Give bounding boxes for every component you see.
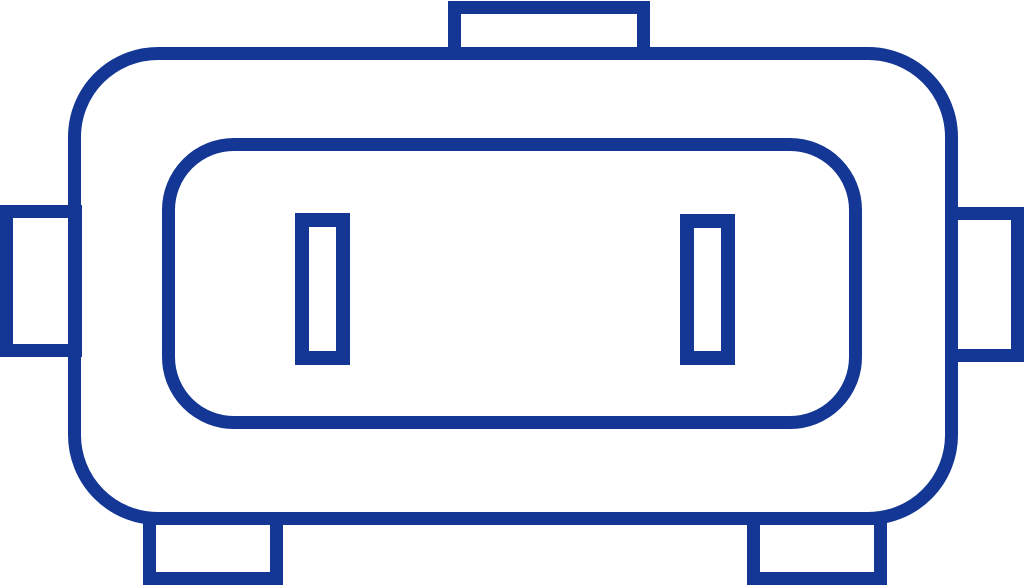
right-mounting-foot [747,512,887,585]
top-tab [448,1,650,60]
icon-canvas [0,0,1024,585]
left-mounting-foot [143,512,283,585]
left-pin-slot [295,213,350,365]
connector-inner-panel [162,138,862,429]
right-side-tab [945,207,1024,362]
left-side-tab [0,205,82,357]
right-pin-slot [680,214,735,365]
